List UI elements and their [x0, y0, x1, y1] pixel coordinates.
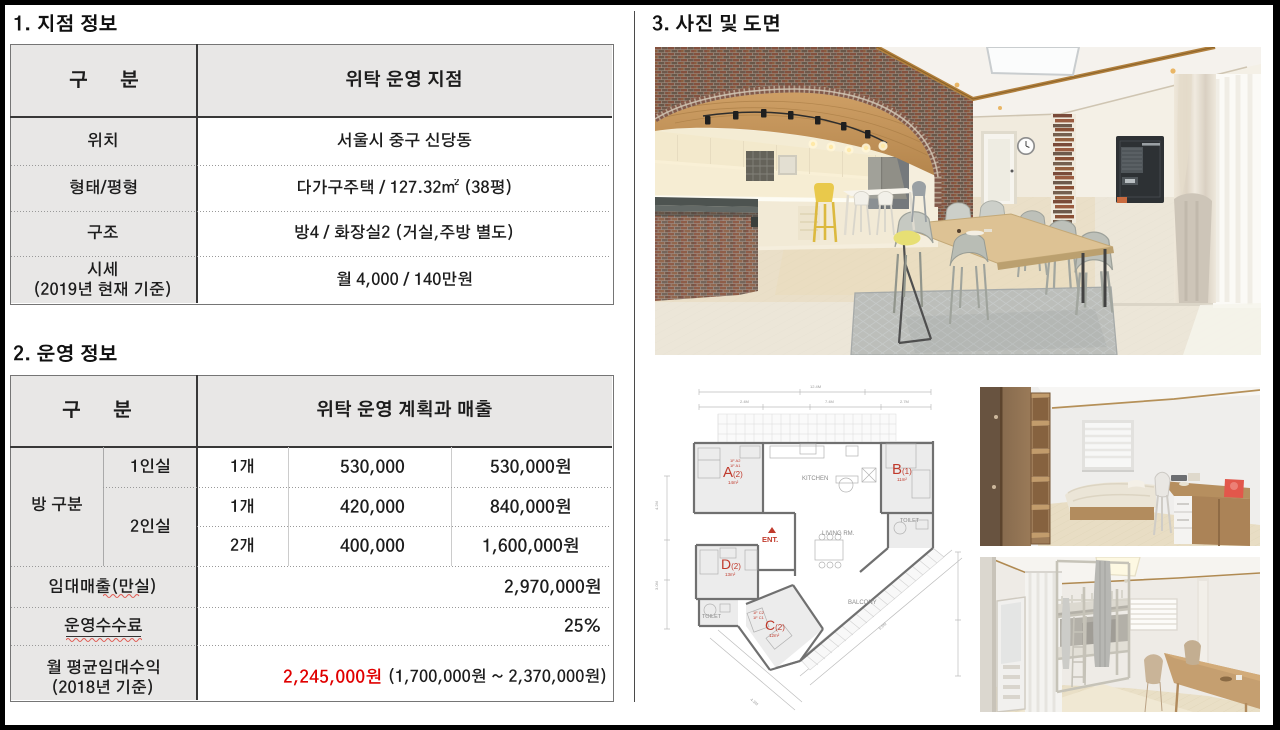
svg-text:3.0M: 3.0M [654, 581, 659, 590]
svg-text:12.4M: 12.4M [810, 384, 821, 389]
svg-text:11m²: 11m² [897, 477, 907, 482]
svg-text:TOILET: TOILET [900, 518, 920, 524]
svg-text:KITCHEN: KITCHEN [802, 476, 828, 482]
svg-text:BALCONY: BALCONY [848, 600, 877, 606]
svg-text:TOILET: TOILET [702, 614, 722, 620]
svg-text:2.7M: 2.7M [900, 399, 909, 404]
svg-text:1F C1: 1F C1 [753, 615, 765, 620]
svg-text:1F A1: 1F A1 [730, 463, 741, 468]
svg-text:ENT.: ENT. [762, 535, 778, 544]
svg-text:LIVING RM.: LIVING RM. [822, 531, 855, 537]
svg-text:2.4M: 2.4M [740, 399, 749, 404]
svg-text:14m²: 14m² [728, 480, 739, 485]
svg-text:4.2M: 4.2M [654, 501, 659, 510]
svg-text:7.4M: 7.4M [825, 399, 834, 404]
svg-text:12m²: 12m² [769, 633, 780, 638]
svg-text:13m²: 13m² [725, 572, 736, 577]
